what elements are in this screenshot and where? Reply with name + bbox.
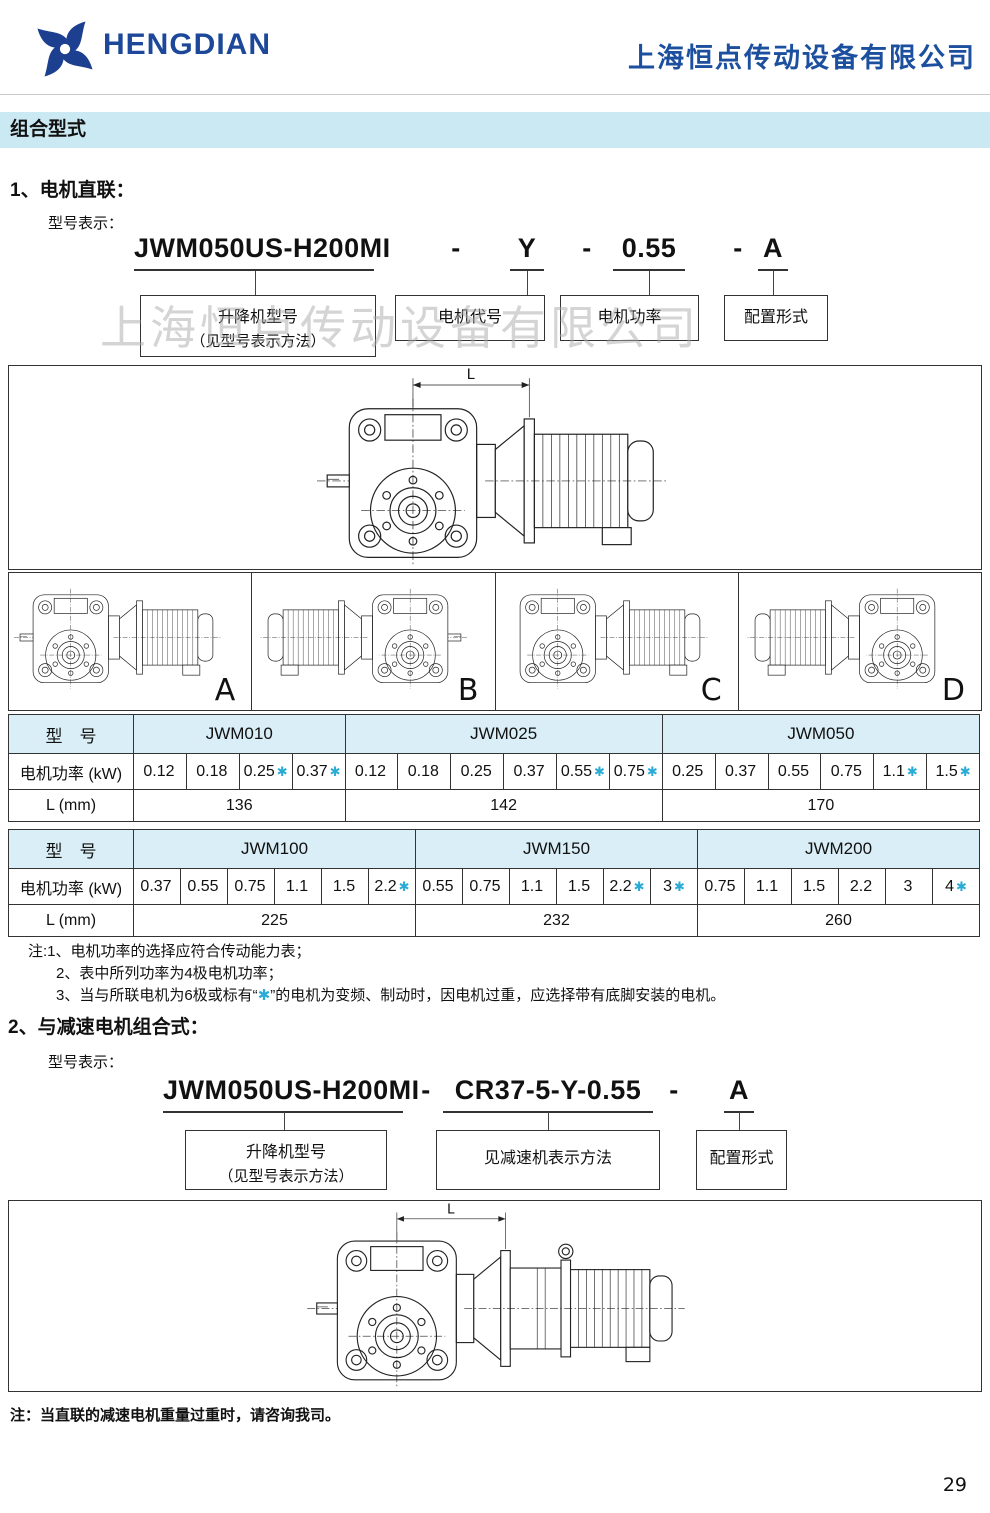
model-code-part4: A <box>758 233 788 271</box>
star-marker: ✱ <box>258 987 271 1004</box>
power-cell: 0.75 <box>698 869 745 905</box>
config-b-drawing <box>256 579 482 701</box>
star-marker: ✱ <box>907 764 918 779</box>
power-cell: 0.25 <box>662 754 715 790</box>
power-cell: 0.55✱ <box>557 754 610 790</box>
power-cell: 0.25✱ <box>239 754 292 790</box>
power-cell: 2.2✱ <box>604 869 651 905</box>
section-banner: 组合型式 <box>0 112 990 148</box>
star-marker: ✱ <box>674 879 685 894</box>
row-header-power: 电机功率 (kW) <box>9 754 134 790</box>
model-group: JWM200 <box>698 830 980 869</box>
connector-line <box>739 1112 740 1130</box>
model-code-part1: JWM050US-H200MI <box>134 233 374 271</box>
label-box-lifter-model-2: 升降机型号 （见型号表示方法） <box>185 1130 387 1190</box>
power-cell: 0.37 <box>134 869 181 905</box>
connector-line <box>255 271 256 295</box>
power-cell: 3✱ <box>651 869 698 905</box>
length-cell: 142 <box>345 790 662 822</box>
label-box-motor-code: 电机代号 <box>395 295 545 341</box>
power-cell: 1.1 <box>275 869 322 905</box>
star-marker: ✱ <box>594 764 605 779</box>
config-cell-b: B <box>252 573 495 710</box>
section2-subheading: 型号表示： <box>48 1051 123 1072</box>
config-letter: A <box>215 673 236 708</box>
row-header-model: 型 号 <box>9 715 134 754</box>
star-marker: ✱ <box>634 879 645 894</box>
config-c-drawing <box>500 579 726 701</box>
power-cell: 0.37 <box>715 754 768 790</box>
power-cell: 4✱ <box>933 869 980 905</box>
config-d-drawing <box>743 579 969 701</box>
connector-line <box>284 1112 285 1130</box>
section2-heading: 2、与减速电机组合式： <box>8 1012 209 1039</box>
config-letter: B <box>458 673 479 708</box>
power-cell: 1.1 <box>745 869 792 905</box>
power-cell: 0.12 <box>345 754 398 790</box>
gearmotor-drawing: L <box>307 368 693 565</box>
row-header-length: L (mm) <box>9 905 134 937</box>
length-cell: 170 <box>662 790 979 822</box>
model2-code-part3: A <box>724 1075 754 1113</box>
spec-table-small-models: 型 号 JWM010 JWM025 JWM050 电机功率 (kW) 0.12 … <box>8 714 980 822</box>
power-cell: 3 <box>886 869 933 905</box>
power-cell: 1.5✱ <box>927 754 980 790</box>
code-dash: - <box>418 1075 434 1109</box>
spec-table-large-models: 型 号 JWM100 JWM150 JWM200 电机功率 (kW) 0.37 … <box>8 829 980 937</box>
star-marker: ✱ <box>330 764 341 779</box>
catalog-page: HENGDIAN 上海恒点传动设备有限公司 组合型式 1、电机直联： 型号表示：… <box>0 0 990 1513</box>
note-line-3: 3、当与所联电机为6极或标有“✱”的电机为变频、制动时，因电机过重，应选择带有底… <box>28 985 725 1007</box>
code-dash: - <box>447 233 465 267</box>
label-box-lifter-model: 升降机型号 （见型号表示方法） <box>140 295 376 357</box>
connector-line <box>527 271 528 295</box>
label-box-motor-power: 电机功率 <box>560 295 699 341</box>
row-header-model: 型 号 <box>9 830 134 869</box>
power-cell: 0.55 <box>416 869 463 905</box>
code-dash: - <box>578 233 596 267</box>
config-cell-a: A <box>9 573 252 710</box>
drawing-panel-motor-direct: L <box>8 365 982 570</box>
power-cell: 0.75 <box>821 754 874 790</box>
banner-title: 组合型式 <box>0 112 990 148</box>
label-box-configuration: 配置形式 <box>724 295 828 341</box>
dimension-label: L <box>447 1203 455 1217</box>
row-header-length: L (mm) <box>9 790 134 822</box>
power-cell: 1.5 <box>322 869 369 905</box>
power-cell: 1.5 <box>557 869 604 905</box>
power-cell: 0.55 <box>181 869 228 905</box>
connector-line <box>649 271 650 295</box>
dimension-label: L <box>467 368 475 383</box>
configurations-panel: A B C D <box>8 572 982 711</box>
power-cell: 2.2 <box>839 869 886 905</box>
model2-code-part2: CR37-5-Y-0.55 <box>443 1075 653 1113</box>
model-group: JWM010 <box>134 715 346 754</box>
length-cell: 232 <box>416 905 698 937</box>
note-line-2: 2、表中所列功率为4极电机功率； <box>28 963 725 985</box>
connector-line <box>773 271 774 295</box>
gearmotor-with-reducer-drawing: L <box>299 1203 689 1387</box>
power-cell: 0.18 <box>186 754 239 790</box>
drawing-panel-gearmotor-combo: L <box>8 1200 982 1392</box>
model-code-part2: Y <box>510 233 544 271</box>
star-marker: ✱ <box>956 879 967 894</box>
power-cell: 0.37✱ <box>292 754 345 790</box>
model-code-part3: 0.55 <box>613 233 685 271</box>
power-cell: 0.55 <box>768 754 821 790</box>
row-header-power: 电机功率 (kW) <box>9 869 134 905</box>
model-group: JWM050 <box>662 715 979 754</box>
power-cell: 1.5 <box>792 869 839 905</box>
power-cell: 0.25 <box>451 754 504 790</box>
config-letter: C <box>701 673 722 708</box>
company-name: 上海恒点传动设备有限公司 <box>628 36 976 75</box>
label-box-reducer-designation: 见减速机表示方法 <box>436 1130 660 1190</box>
config-cell-d: D <box>739 573 981 710</box>
code-dash: - <box>666 1075 682 1109</box>
model-group: JWM025 <box>345 715 662 754</box>
power-cell: 0.75 <box>463 869 510 905</box>
config-a-drawing <box>13 579 239 701</box>
power-cell: 0.18 <box>398 754 451 790</box>
note-line-1: 注:1、电机功率的选择应符合传动能力表； <box>28 941 725 963</box>
model-group: JWM100 <box>134 830 416 869</box>
hengdian-pinwheel-logo-icon <box>33 8 97 90</box>
table-notes: 注:1、电机功率的选择应符合传动能力表； 2、表中所列功率为4极电机功率； 3、… <box>28 941 725 1007</box>
star-marker: ✱ <box>647 764 658 779</box>
config-cell-c: C <box>496 573 739 710</box>
length-cell: 225 <box>134 905 416 937</box>
logo-wordmark: HENGDIAN <box>103 28 271 62</box>
star-marker: ✱ <box>399 879 410 894</box>
power-cell: 0.12 <box>134 754 187 790</box>
section1-subheading: 型号表示： <box>48 212 123 233</box>
power-cell: 0.75 <box>228 869 275 905</box>
power-cell: 1.1✱ <box>874 754 927 790</box>
page-number: 29 <box>943 1474 967 1496</box>
power-cell: 2.2✱ <box>369 869 416 905</box>
length-cell: 260 <box>698 905 980 937</box>
star-marker: ✱ <box>277 764 288 779</box>
model2-code-part1: JWM050US-H200MI <box>163 1075 403 1113</box>
power-cell: 0.37 <box>504 754 557 790</box>
model-group: JWM150 <box>416 830 698 869</box>
code-dash: - <box>729 233 747 267</box>
star-marker: ✱ <box>960 764 971 779</box>
power-cell: 1.1 <box>510 869 557 905</box>
connector-line <box>548 1112 549 1130</box>
label-box-configuration-2: 配置形式 <box>696 1130 787 1190</box>
length-cell: 136 <box>134 790 346 822</box>
header-divider <box>0 94 990 95</box>
section2-note: 注：当直联的减速电机重量过重时，请咨询我司。 <box>10 1404 340 1425</box>
config-letter: D <box>942 673 965 708</box>
power-cell: 0.75✱ <box>609 754 662 790</box>
section1-heading: 1、电机直联： <box>10 175 135 202</box>
